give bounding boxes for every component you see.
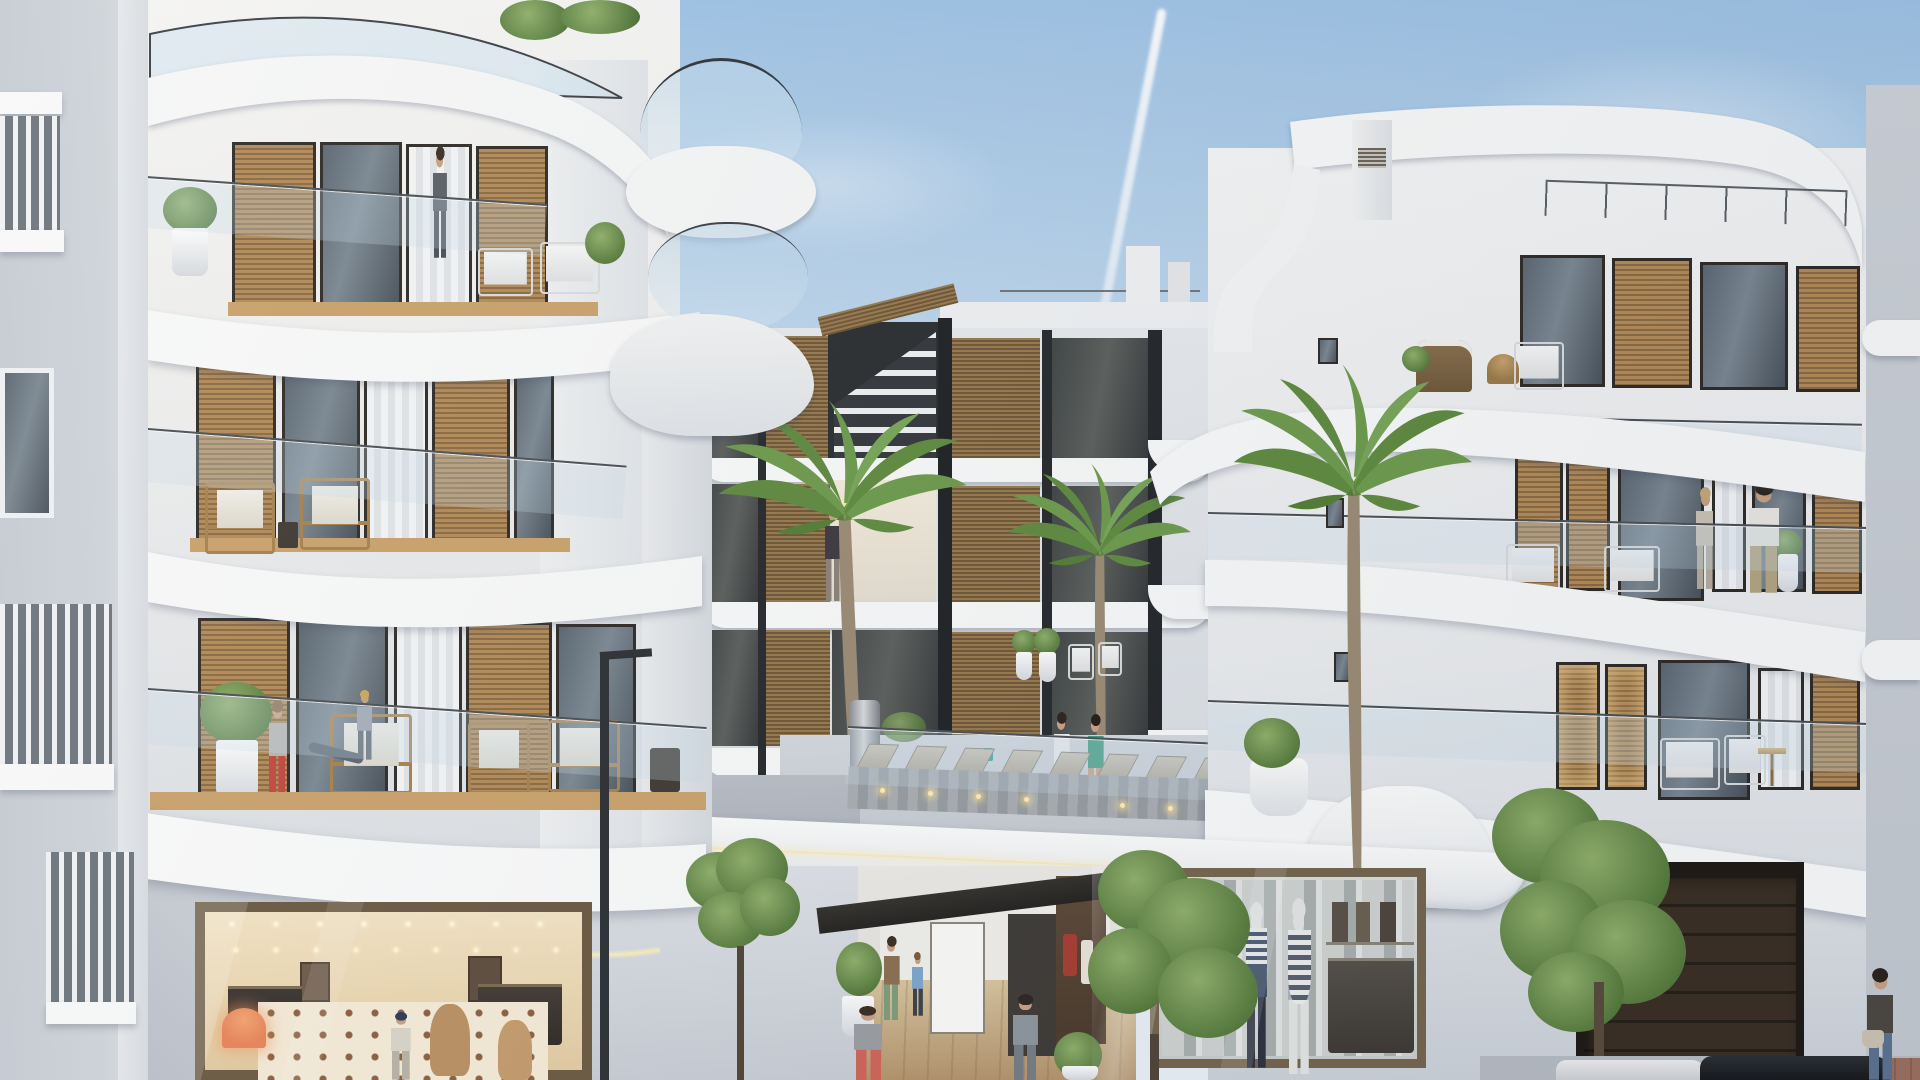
woman-handbag-street [1858, 968, 1903, 1080]
boutique-mannequin [384, 1012, 418, 1080]
boutique-ceiling-lights [216, 942, 572, 958]
boutique-gingerbread-figure [430, 1004, 470, 1076]
roof-garden-bush [500, 0, 570, 40]
neighbour-balcony-slab [46, 1002, 136, 1024]
neighbour-balcony-railing [0, 604, 112, 766]
architectural-render-scene [0, 0, 1920, 1080]
neighbour-balcony-railing [46, 852, 134, 1004]
street-tree-trunk [737, 946, 744, 1080]
street-tree-trunk [1150, 1034, 1159, 1080]
neighbour-balcony-slab [0, 764, 114, 790]
white-car-roof [1556, 1060, 1706, 1080]
boutique-gingerbread-figure [498, 1020, 532, 1080]
handbag-shelf [1326, 902, 1414, 945]
neighbour-balcony-railing [0, 116, 60, 230]
roof-garden-bush [560, 0, 640, 34]
street-lamp-post [600, 652, 609, 1080]
neighbour-balcony-slab [0, 230, 64, 252]
mannequin-striped-dress [1288, 930, 1311, 1004]
boutique-ceiling-lights [210, 916, 576, 932]
boutique-orange-lamp [222, 1008, 266, 1048]
street-tree-canopy [1528, 952, 1624, 1032]
street-tree-canopy [740, 878, 800, 936]
boutique-framed-picture [300, 962, 330, 1002]
neighbour-window [0, 368, 54, 518]
handbag [1862, 1030, 1884, 1048]
neighbour-parapet [0, 92, 62, 114]
boutique-clothes-rack [1328, 958, 1414, 1053]
street-tree-canopy [1158, 948, 1258, 1038]
